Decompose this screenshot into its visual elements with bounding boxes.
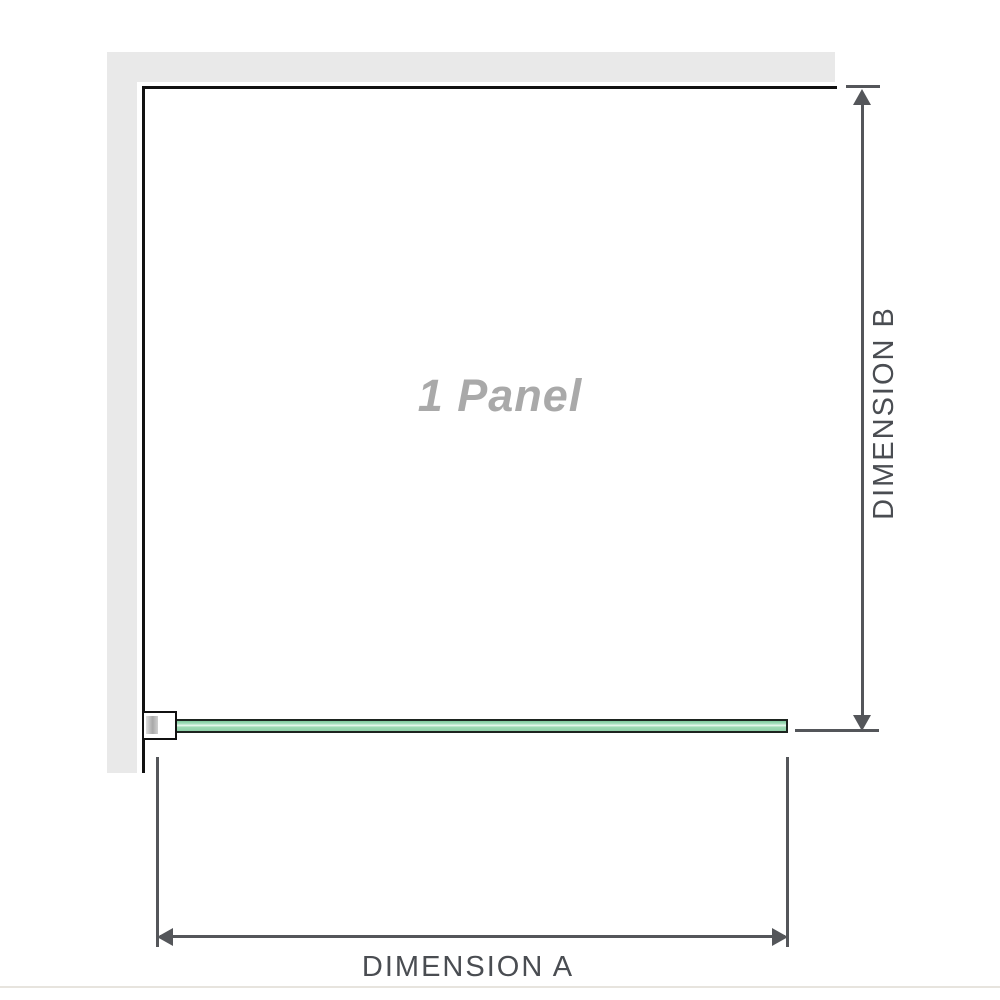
dimension-b-label: DIMENSION B (869, 288, 899, 538)
dimension-diagram: 1 Panel DIMENSION B DIMENSION A (0, 0, 1000, 1000)
panel-count-label: 1 Panel (300, 368, 700, 424)
dimension-a-left-extension (156, 757, 159, 947)
bracket-pad (146, 716, 158, 734)
dimension-a-line (160, 935, 785, 938)
wall-bracket (142, 711, 177, 740)
dimension-a-label: DIMENSION A (318, 950, 618, 984)
dimension-a-right-arrow-icon (772, 928, 788, 946)
glass-panel-bar (154, 719, 788, 733)
page-baseline-rule (0, 986, 1000, 988)
wall-left-bar (107, 52, 137, 773)
dimension-a-right-extension (786, 757, 789, 947)
wall-top-bar (107, 52, 835, 82)
dimension-b-top-tick (846, 85, 880, 88)
panel-outline-top (142, 86, 837, 89)
dimension-b-bottom-tick (795, 729, 879, 732)
dimension-b-line (861, 100, 864, 715)
panel-outline-left (142, 86, 145, 773)
